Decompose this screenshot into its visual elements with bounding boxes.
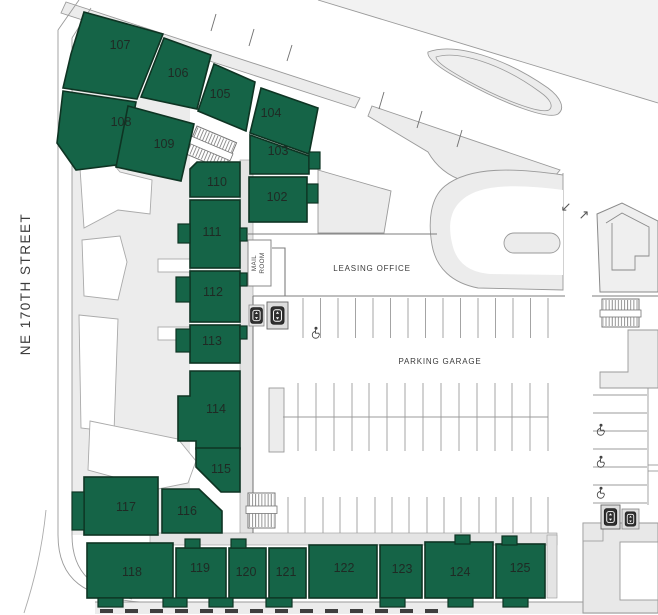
unit-104-label: 104 xyxy=(261,106,282,120)
elevator-icon xyxy=(604,509,617,526)
mail-room-label: MAIL xyxy=(251,255,258,271)
unit-119-label: 119 xyxy=(190,561,210,575)
elevator-icon xyxy=(271,307,284,325)
unit-105-label: 105 xyxy=(210,87,231,101)
garage-pillar xyxy=(269,388,284,452)
unit-122-label: 122 xyxy=(334,561,355,575)
exit-arrow-icon: ↗ xyxy=(579,207,590,222)
entry-arrow-icon: ↙ xyxy=(561,199,572,214)
unit-114-label: 114 xyxy=(206,402,226,416)
driveway-island xyxy=(504,233,560,253)
stairs-bottom xyxy=(246,493,277,528)
leasing-office-label: LEASING OFFICE xyxy=(333,264,410,273)
parking-garage-label: PARKING GARAGE xyxy=(398,357,481,366)
unit-107-label: 107 xyxy=(110,38,131,52)
unit-118-label: 118 xyxy=(122,565,142,579)
elevator-icon xyxy=(625,512,636,526)
unit-103-label: 103 xyxy=(268,144,289,158)
unit-123-label: 123 xyxy=(392,562,413,576)
unit-115-label: 115 xyxy=(211,462,231,476)
unit-109-label: 109 xyxy=(154,137,175,151)
unit-121-label: 121 xyxy=(276,565,297,579)
elevator-icon xyxy=(251,308,263,324)
site-plan-svg: ↙ ↗ NE 170TH STREET LEASING OFFICE PARKI… xyxy=(0,0,658,615)
unit-120-label: 120 xyxy=(236,565,257,579)
right-building xyxy=(597,203,658,292)
unit-124-label: 124 xyxy=(450,565,471,579)
unit-111-label: 111 xyxy=(202,225,221,239)
unit-106-label: 106 xyxy=(168,66,189,80)
street-name-label: NE 170TH STREET xyxy=(18,213,33,356)
unit-117-label: 117 xyxy=(116,500,136,514)
elevators-bottom-right xyxy=(601,505,639,529)
corridor-right-end xyxy=(547,535,557,598)
bottom-right-lobby xyxy=(583,523,658,613)
driveway-loop xyxy=(430,170,563,290)
unit-108-label: 108 xyxy=(111,115,132,129)
unit-102-label: 102 xyxy=(267,190,288,204)
unit-125-label: 125 xyxy=(510,561,531,575)
unit-112-label: 112 xyxy=(203,285,223,299)
mail-room-label: ROOM xyxy=(259,252,266,273)
site-map: ↙ ↗ NE 170TH STREET LEASING OFFICE PARKI… xyxy=(0,0,658,615)
unit-116-label: 116 xyxy=(177,504,197,518)
unit-110-label: 110 xyxy=(207,175,227,189)
elevators-lobby xyxy=(249,302,288,329)
stairs-right xyxy=(600,299,641,327)
unit-113-label: 113 xyxy=(202,334,222,348)
